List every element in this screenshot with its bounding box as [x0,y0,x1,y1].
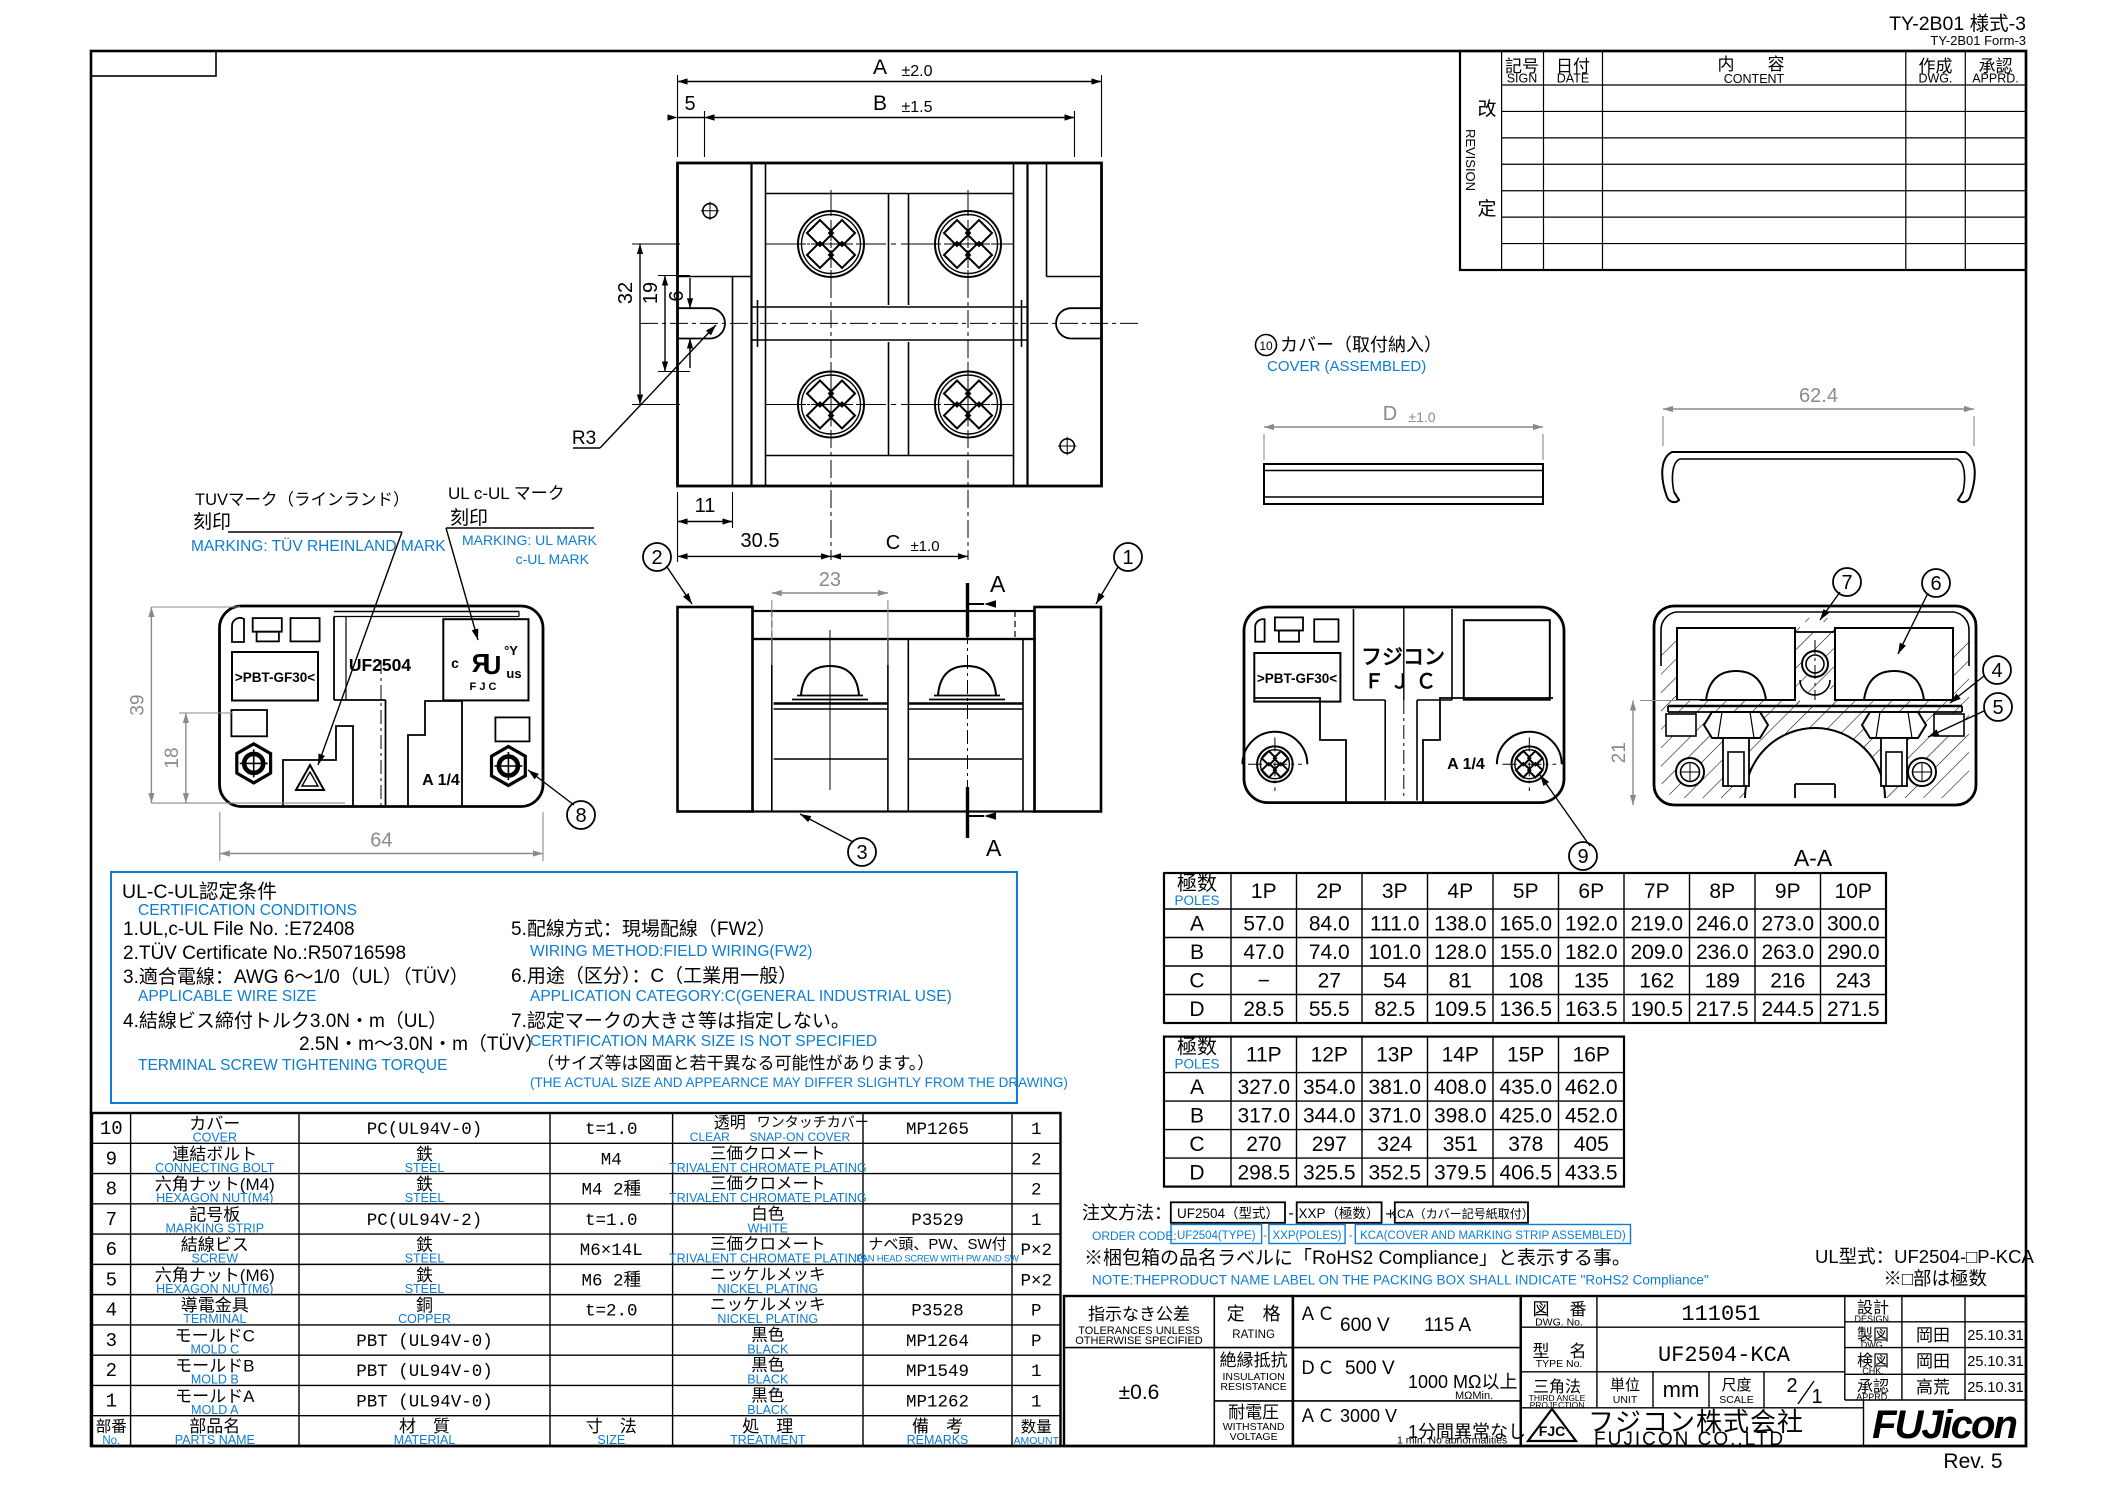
svg-text:270: 270 [1246,1133,1281,1156]
svg-text:c-UL MARK: c-UL MARK [516,551,590,567]
svg-text:28.5: 28.5 [1243,998,1284,1021]
svg-text:UF2504(TYPE): UF2504(TYPE) [1177,1230,1256,1242]
svg-text:NOTE:THEPRODUCT NAME LABEL ON: NOTE:THEPRODUCT NAME LABEL ON THE PACKIN… [1092,1273,1709,1288]
svg-text:324: 324 [1377,1133,1412,1156]
svg-text:フジコン: フジコン [1361,646,1445,669]
svg-text:岡田: 岡田 [1916,1352,1950,1371]
svg-text:3: 3 [106,1330,117,1352]
svg-text:9P: 9P [1775,880,1801,903]
svg-text:317.0: 317.0 [1237,1104,1290,1127]
svg-text:DWG.: DWG. [1918,72,1952,86]
svg-text:7P: 7P [1644,880,1670,903]
svg-text:C: C [1189,969,1204,992]
svg-text:600 V: 600 V [1340,1315,1390,1336]
svg-text:STEEL: STEEL [405,1252,445,1266]
svg-text:64: 64 [370,830,392,852]
svg-text:-: - [1263,1230,1267,1242]
svg-text:109.5: 109.5 [1434,998,1487,1021]
svg-text:UF2504: UF2504 [349,655,412,675]
svg-text:CONTENT: CONTENT [1724,72,1785,86]
svg-text:209.0: 209.0 [1630,941,1683,964]
svg-text:344.0: 344.0 [1303,1104,1356,1127]
svg-text:POLES: POLES [1174,1057,1219,1072]
svg-text:M4: M4 [601,1150,622,1170]
svg-text:PC(UL94V-0): PC(UL94V-0) [367,1120,483,1140]
svg-text:190.5: 190.5 [1630,998,1683,1021]
svg-text:10P: 10P [1835,880,1872,903]
svg-text:A: A [1190,912,1204,935]
svg-text:263.0: 263.0 [1761,941,1814,964]
svg-text:325.5: 325.5 [1303,1161,1356,1184]
svg-text:P3529: P3529 [911,1211,964,1231]
svg-text:（サイズ等は図面と若干異なる可能性があります。）: （サイズ等は図面と若干異なる可能性があります。） [537,1054,934,1073]
svg-text:±0.6: ±0.6 [1119,1381,1160,1404]
svg-text:>PBT-GF30<: >PBT-GF30< [235,670,315,685]
svg-text:Rev. 5: Rev. 5 [1943,1450,2002,1473]
svg-text:DWG.: DWG. [1861,1340,1886,1350]
svg-text:327.0: 327.0 [1237,1076,1290,1099]
svg-text:111.0: 111.0 [1370,912,1419,935]
svg-text:500 V: 500 V [1345,1358,1395,1379]
svg-text:M4 2種: M4 2種 [582,1180,642,1201]
svg-text:12P: 12P [1311,1044,1348,1067]
svg-text:XXP（極数）: XXP（極数） [1298,1206,1379,1221]
svg-text:162: 162 [1639,969,1674,992]
svg-text:STEEL: STEEL [405,1161,445,1175]
svg-text:DATE: DATE [1557,72,1589,86]
svg-text:155.0: 155.0 [1499,941,1552,964]
svg-text:耐電圧: 耐電圧 [1228,1403,1279,1422]
svg-text:10: 10 [1259,339,1273,353]
svg-text:435.0: 435.0 [1499,1076,1552,1099]
svg-text:138.0: 138.0 [1434,912,1487,935]
svg-text:B: B [1190,941,1204,964]
svg-text:462.0: 462.0 [1565,1076,1618,1099]
svg-text:MOLD A: MOLD A [191,1403,239,1417]
svg-text:3.適合電線：AWG 6〜1/0（UL）（TÜV）: 3.適合電線：AWG 6〜1/0（UL）（TÜV） [123,966,469,988]
svg-text:381.0: 381.0 [1368,1076,1421,1099]
svg-text:236.0: 236.0 [1696,941,1749,964]
svg-text:C: C [1189,1133,1204,1156]
svg-text:P: P [1031,1332,1042,1352]
svg-text:11: 11 [695,495,716,517]
svg-text:21: 21 [1609,742,1630,763]
svg-text:APPRD.: APPRD. [1972,72,2019,86]
svg-text:57.0: 57.0 [1243,912,1284,935]
svg-text:D: D [1189,998,1204,1021]
svg-text:SCREW: SCREW [192,1252,239,1266]
svg-text:1: 1 [1031,1211,1042,1231]
svg-text:CERTIFICATION MARK SIZE IS NOT: CERTIFICATION MARK SIZE IS NOT SPECIFIED [530,1033,877,1050]
svg-text:74.0: 74.0 [1309,941,1350,964]
svg-text:A: A [990,571,1006,597]
svg-text:297: 297 [1312,1133,1347,1156]
svg-text:406.5: 406.5 [1499,1161,1552,1184]
svg-text:27: 27 [1318,969,1341,992]
svg-text:1: 1 [1031,1120,1042,1140]
svg-text:t=1.0: t=1.0 [585,1120,638,1140]
svg-text:※□部は極数: ※□部は極数 [1883,1268,1987,1289]
svg-text:7.認定マークの大きさ等は指定しない。: 7.認定マークの大きさ等は指定しない。 [511,1010,850,1032]
svg-text:D: D [1383,403,1397,425]
svg-text:405: 405 [1574,1133,1609,1156]
svg-text:UL c-UL マーク: UL c-UL マーク [448,484,565,503]
svg-text:COVER: COVER [193,1131,237,1145]
svg-text:TRIVALENT CHROMATE PLATING: TRIVALENT CHROMATE PLATING [669,1191,867,1205]
svg-text:SNAP-ON COVER: SNAP-ON COVER [749,1130,850,1144]
svg-text:5: 5 [1992,697,2003,719]
svg-text:R3: R3 [572,428,596,449]
svg-text:単位: 単位 [1610,1377,1640,1394]
svg-text:MΩMin.: MΩMin. [1455,1390,1493,1402]
svg-text:54: 54 [1383,969,1407,992]
svg-text:14P: 14P [1442,1044,1479,1067]
svg-text:CHK.: CHK. [1862,1366,1884,1376]
svg-text:82.5: 82.5 [1374,998,1415,1021]
svg-text:8: 8 [106,1179,117,1201]
svg-text:極数: 極数 [1177,1036,1217,1059]
svg-text:MARKING STRIP: MARKING STRIP [165,1221,264,1235]
svg-text:DWG. No.: DWG. No. [1535,1317,1583,1329]
svg-text:290.0: 290.0 [1827,941,1880,964]
svg-text:19: 19 [640,282,662,304]
svg-text:数量: 数量 [1021,1418,1052,1436]
svg-text:P: P [1031,1302,1042,1322]
svg-text:VOLTAGE: VOLTAGE [1230,1431,1278,1443]
svg-text:A: A [986,835,1002,861]
svg-text:352.5: 352.5 [1368,1161,1421,1184]
svg-text:2.5N・m〜3.0N・m（TÜV）: 2.5N・m〜3.0N・m（TÜV） [299,1033,544,1055]
svg-text:-: - [1349,1230,1353,1242]
svg-text:APPLICATION CATEGORY:C(GENERAL: APPLICATION CATEGORY:C(GENERAL INDUSTRIA… [530,988,952,1005]
svg-text:M6×14L: M6×14L [580,1241,643,1261]
svg-text:PBT (UL94V-0): PBT (UL94V-0) [356,1362,493,1382]
svg-text:1000 MΩ以上: 1000 MΩ以上 [1408,1372,1518,1392]
svg-text:MP1265: MP1265 [906,1120,969,1140]
svg-text:9: 9 [1577,846,1588,868]
svg-text:BLACK: BLACK [747,1403,789,1417]
svg-text:MATERIAL: MATERIAL [394,1433,456,1447]
svg-text:HEXAGON NUT(M4): HEXAGON NUT(M4) [156,1191,273,1205]
svg-text:UNIT: UNIT [1613,1394,1638,1406]
svg-text:極数: 極数 [1177,872,1217,895]
svg-text:4.結線ビス締付トルク3.0N・m（UL）: 4.結線ビス締付トルク3.0N・m（UL） [123,1010,447,1032]
svg-text:30.5: 30.5 [741,530,780,552]
svg-text:UL-C-UL認定条件: UL-C-UL認定条件 [122,881,277,903]
svg-text:mm: mm [1663,1377,1700,1402]
svg-text:A: A [873,56,887,79]
svg-text:(THE ACTUAL SIZE AND APPEARNCE: (THE ACTUAL SIZE AND APPEARNCE MAY DIFFE… [530,1075,1068,1090]
svg-text:408.0: 408.0 [1434,1076,1487,1099]
svg-text:1: 1 [1122,547,1133,569]
svg-text:A-A: A-A [1794,845,1833,871]
svg-text:300.0: 300.0 [1827,912,1880,935]
svg-text:16P: 16P [1573,1044,1610,1067]
svg-text:A 1/4: A 1/4 [422,772,460,789]
svg-text:HEXAGON NUT(M6): HEXAGON NUT(M6) [156,1282,273,1296]
svg-text:A 1/4: A 1/4 [1447,756,1485,773]
svg-text:216: 216 [1770,969,1805,992]
svg-text:TREATMENT: TREATMENT [730,1433,806,1447]
svg-text:TY-2B01 Form-3: TY-2B01 Form-3 [1930,33,2026,48]
svg-text:1: 1 [1811,1386,1822,1408]
svg-text:高荒: 高荒 [1916,1378,1950,1397]
svg-text:354.0: 354.0 [1303,1076,1356,1099]
svg-text:U: U [483,650,502,680]
svg-text:RATING: RATING [1232,1329,1275,1341]
svg-text:カバー（取付納入）: カバー（取付納入） [1280,335,1442,355]
svg-text:MOLD B: MOLD B [191,1373,239,1387]
svg-text:165.0: 165.0 [1499,912,1552,935]
svg-text:±1.0: ±1.0 [1408,409,1435,425]
svg-text:1: 1 [106,1390,117,1412]
svg-text:189: 189 [1705,969,1740,992]
svg-text:APPRD.: APPRD. [1856,1392,1890,1402]
svg-text:244.5: 244.5 [1761,998,1814,1021]
svg-text:81: 81 [1449,969,1472,992]
svg-text:POLES: POLES [1174,893,1219,908]
svg-text:SIGN: SIGN [1507,72,1538,86]
svg-text:398.0: 398.0 [1434,1104,1487,1127]
svg-text:P×2: P×2 [1020,1271,1052,1291]
svg-text:TUVマーク（ラインランド）: TUVマーク（ラインランド） [195,490,410,509]
svg-text:1 min. No abnormalities: 1 min. No abnormalities [1397,1435,1507,1447]
svg-text:B: B [873,92,887,115]
svg-text:絶縁抵抗: 絶縁抵抗 [1220,1351,1288,1370]
svg-text:ＡＣ 3000 V: ＡＣ 3000 V [1299,1406,1397,1426]
svg-text:-: - [1288,1205,1293,1222]
svg-text:SCALE: SCALE [1719,1394,1753,1406]
svg-text:8P: 8P [1709,880,1735,903]
svg-text:4: 4 [1991,660,2002,682]
svg-text:135: 135 [1574,969,1609,992]
svg-text:PC(UL94V-2): PC(UL94V-2) [367,1211,483,1231]
svg-text:3P: 3P [1382,880,1408,903]
svg-text:岡田: 岡田 [1916,1326,1950,1345]
svg-text:CERTIFICATION CONDITIONS: CERTIFICATION CONDITIONS [138,902,357,919]
svg-text:4: 4 [106,1300,117,1322]
svg-text:433.5: 433.5 [1565,1161,1618,1184]
svg-text:18: 18 [162,747,183,768]
svg-text:RESISTANCE: RESISTANCE [1220,1381,1286,1393]
svg-text:5: 5 [684,93,695,115]
svg-text:PROJECTION: PROJECTION [1530,1400,1585,1410]
svg-text:2: 2 [1031,1181,1042,1201]
svg-text:CONNECTING BOLT: CONNECTING BOLT [155,1161,275,1175]
svg-text:25.10.31: 25.10.31 [1967,1328,2023,1344]
svg-text:ＤＣ: ＤＣ [1299,1358,1335,1378]
svg-text:55.5: 55.5 [1309,998,1350,1021]
svg-text:111051: 111051 [1681,1302,1760,1327]
svg-text:136.5: 136.5 [1499,998,1552,1021]
svg-text:BLACK: BLACK [747,1342,789,1356]
svg-text:108: 108 [1508,969,1543,992]
svg-text:TERMINAL: TERMINAL [183,1312,246,1326]
svg-text:378: 378 [1508,1133,1543,1156]
svg-text:BLACK: BLACK [747,1373,789,1387]
svg-text:243: 243 [1836,969,1871,992]
svg-text:351: 351 [1443,1133,1478,1156]
svg-text:P×2: P×2 [1020,1241,1052,1261]
svg-text:6P: 6P [1578,880,1604,903]
svg-text:MP1549: MP1549 [906,1362,969,1382]
svg-text:No.: No. [102,1435,120,1447]
svg-text:6: 6 [106,1239,117,1261]
svg-text:MOLD C: MOLD C [190,1342,239,1356]
svg-text:MARKING: UL MARK: MARKING: UL MARK [462,532,597,548]
svg-text:COPPER: COPPER [398,1312,451,1326]
svg-text:刻印: 刻印 [193,511,231,533]
svg-text:AMOUNT: AMOUNT [1014,1435,1060,1447]
svg-text:指示なき公差: 指示なき公差 [1088,1305,1190,1324]
svg-text:15P: 15P [1507,1044,1544,1067]
svg-text:KCA(COVER AND MARKING STRIP AS: KCA(COVER AND MARKING STRIP ASSEMBLED) [1360,1230,1626,1242]
svg-text:REVISION: REVISION [1463,129,1478,191]
svg-text:定 格: 定 格 [1227,1304,1281,1324]
svg-text:4P: 4P [1447,880,1473,903]
svg-text:1: 1 [1031,1392,1042,1412]
svg-text:ＡＣ: ＡＣ [1299,1304,1335,1324]
svg-text:PARTS NAME: PARTS NAME [175,1433,255,1447]
svg-text:PAN HEAD SCREW WITH PW AND SW: PAN HEAD SCREW WITH PW AND SW [856,1254,1018,1265]
svg-text:ORDER CODE:: ORDER CODE: [1092,1229,1177,1243]
svg-text:F J C: F J C [470,681,497,693]
svg-text:NICKEL PLATING: NICKEL PLATING [717,1312,818,1326]
svg-text:163.5: 163.5 [1565,998,1618,1021]
svg-text:CLEAR: CLEAR [690,1130,730,1144]
svg-text:452.0: 452.0 [1565,1104,1618,1127]
svg-text:FUJicon: FUJicon [1872,1403,2016,1447]
svg-text:182.0: 182.0 [1565,941,1618,964]
svg-text:47.0: 47.0 [1243,941,1284,964]
svg-text:371.0: 371.0 [1368,1104,1421,1127]
svg-text:WHITE: WHITE [748,1221,788,1235]
svg-text:OTHERWISE SPECIFIED: OTHERWISE SPECIFIED [1075,1335,1203,1347]
svg-text:A: A [1190,1076,1204,1099]
svg-text:115 A: 115 A [1424,1315,1472,1336]
svg-text:1P: 1P [1251,880,1277,903]
svg-text:39: 39 [127,694,148,715]
svg-text:5.配線方式：現場配線（FW2）: 5.配線方式：現場配線（FW2） [511,918,776,940]
svg-text:ナベ頭、PW、SW付: ナベ頭、PW、SW付 [868,1236,1006,1253]
svg-text:MP1262: MP1262 [906,1392,969,1412]
svg-text:PBT (UL94V-0): PBT (UL94V-0) [356,1332,493,1352]
svg-text:MP1264: MP1264 [906,1332,969,1352]
svg-text:425.0: 425.0 [1499,1104,1552,1127]
svg-text:6: 6 [1930,573,1941,595]
svg-text:注文方法：: 注文方法： [1082,1203,1172,1223]
svg-text:23: 23 [819,569,841,591]
svg-text:−: − [1258,969,1270,992]
svg-text:ＦＪＣ: ＦＪＣ [1364,671,1442,693]
svg-text:B: B [1190,1104,1204,1127]
svg-text:101.0: 101.0 [1368,941,1421,964]
svg-text:UF2504（型式）: UF2504（型式） [1177,1206,1279,1221]
svg-text:±1.0: ±1.0 [910,538,939,555]
svg-text:7: 7 [106,1209,117,1231]
svg-text:刻印: 刻印 [450,507,488,529]
svg-text:32: 32 [615,282,637,304]
svg-text:t=1.0: t=1.0 [585,1211,638,1231]
svg-text:±2.0: ±2.0 [901,63,932,80]
svg-text:APPLICABLE WIRE SIZE: APPLICABLE WIRE SIZE [138,988,316,1005]
svg-text:84.0: 84.0 [1309,912,1350,935]
svg-text:STEEL: STEEL [405,1191,445,1205]
svg-text:25.10.31: 25.10.31 [1967,1354,2023,1370]
svg-text:定: 定 [1477,198,1496,220]
svg-text:KCA（カバー記号紙取付）: KCA（カバー記号紙取付） [1389,1206,1534,1221]
svg-text:TRIVALENT CHROMATE PLATING: TRIVALENT CHROMATE PLATING [669,1252,867,1266]
svg-text:62.4: 62.4 [1799,385,1838,407]
svg-text:192.0: 192.0 [1565,912,1618,935]
svg-text:1.UL,c-UL File No. :E72408: 1.UL,c-UL File No. :E72408 [123,919,355,940]
svg-text:SIZE: SIZE [597,1433,625,1447]
svg-text:25.10.31: 25.10.31 [1967,1380,2023,1396]
svg-text:P3528: P3528 [911,1302,964,1322]
svg-text:FJC: FJC [1539,1423,1565,1439]
svg-text:2: 2 [106,1360,117,1382]
svg-text:217.5: 217.5 [1696,998,1749,1021]
svg-text:FUJICON CO.,LTD: FUJICON CO.,LTD [1594,1429,1785,1450]
svg-text:1: 1 [1031,1362,1042,1382]
svg-text:TERMINAL SCREW TIGHTENING TORQ: TERMINAL SCREW TIGHTENING TORQUE [138,1057,447,1074]
svg-text:246.0: 246.0 [1696,912,1749,935]
svg-text:7: 7 [1841,572,1852,594]
svg-text:°Y: °Y [504,643,518,658]
svg-text:TY-2B01 様式-3: TY-2B01 様式-3 [1889,13,2026,35]
svg-text:尺度: 尺度 [1721,1377,1751,1394]
svg-text:379.5: 379.5 [1434,1161,1487,1184]
svg-text:PBT (UL94V-0): PBT (UL94V-0) [356,1392,493,1412]
svg-text:COVER (ASSEMBLED): COVER (ASSEMBLED) [1267,358,1426,375]
svg-text:273.0: 273.0 [1761,912,1814,935]
svg-text:219.0: 219.0 [1630,912,1683,935]
svg-text:UF2504-KCA: UF2504-KCA [1658,1343,1791,1368]
svg-text:t=2.0: t=2.0 [585,1302,638,1322]
svg-text:XXP(POLES): XXP(POLES) [1272,1230,1341,1242]
svg-text:5P: 5P [1513,880,1539,903]
svg-text:5: 5 [106,1269,117,1291]
svg-text:改: 改 [1477,98,1496,120]
svg-text:>PBT-GF30<: >PBT-GF30< [1257,671,1337,686]
svg-text:2: 2 [651,547,662,569]
svg-text:NICKEL PLATING: NICKEL PLATING [717,1282,818,1296]
svg-text:WIRING METHOD:FIELD WIRING(FW2: WIRING METHOD:FIELD WIRING(FW2) [530,943,812,960]
svg-text:±1.5: ±1.5 [901,99,932,116]
svg-text:2: 2 [1786,1375,1797,1397]
svg-text:3: 3 [856,842,867,864]
svg-text:298.5: 298.5 [1237,1161,1290,1184]
svg-text:9: 9 [106,1148,117,1170]
svg-text:c: c [451,655,459,671]
svg-text:2: 2 [1031,1150,1042,1170]
svg-text:10: 10 [100,1118,123,1140]
svg-text:TYPE No.: TYPE No. [1536,1358,1583,1370]
svg-text:UL型式：UF2504-□P-KCA: UL型式：UF2504-□P-KCA [1815,1246,2034,1267]
svg-text:DESIGN.: DESIGN. [1854,1314,1891,1324]
svg-text:STEEL: STEEL [405,1282,445,1296]
svg-text:C: C [886,532,900,554]
svg-text:us: us [506,666,521,681]
svg-text:MARKING: TÜV RHEINLAND MARK: MARKING: TÜV RHEINLAND MARK [191,537,446,555]
svg-text:2.TÜV Certificate No.:R5071659: 2.TÜV Certificate No.:R50716598 [123,943,406,964]
svg-text:REMARKS: REMARKS [907,1433,969,1447]
svg-text:ワンタッチカバー: ワンタッチカバー [757,1114,869,1130]
svg-text:TRIVALENT CHROMATE PLATING: TRIVALENT CHROMATE PLATING [669,1161,867,1175]
svg-text:271.5: 271.5 [1827,998,1880,1021]
svg-text:D: D [1189,1161,1204,1184]
svg-text:8: 8 [575,805,586,827]
